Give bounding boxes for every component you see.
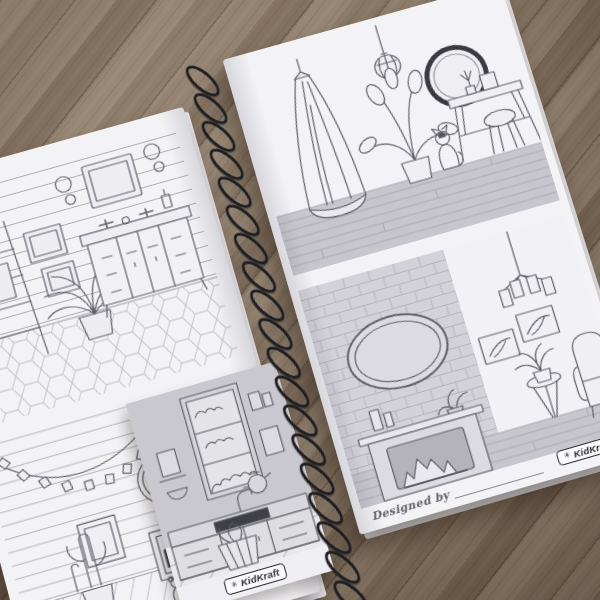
kidkraft-flower-icon: ✳: [563, 451, 572, 461]
spiral-book: 10 Designed by: [0, 0, 600, 600]
kidkraft-logo-text-insert: KidKraft: [240, 567, 281, 588]
kidkraft-flower-icon-insert: ✳: [230, 580, 239, 590]
